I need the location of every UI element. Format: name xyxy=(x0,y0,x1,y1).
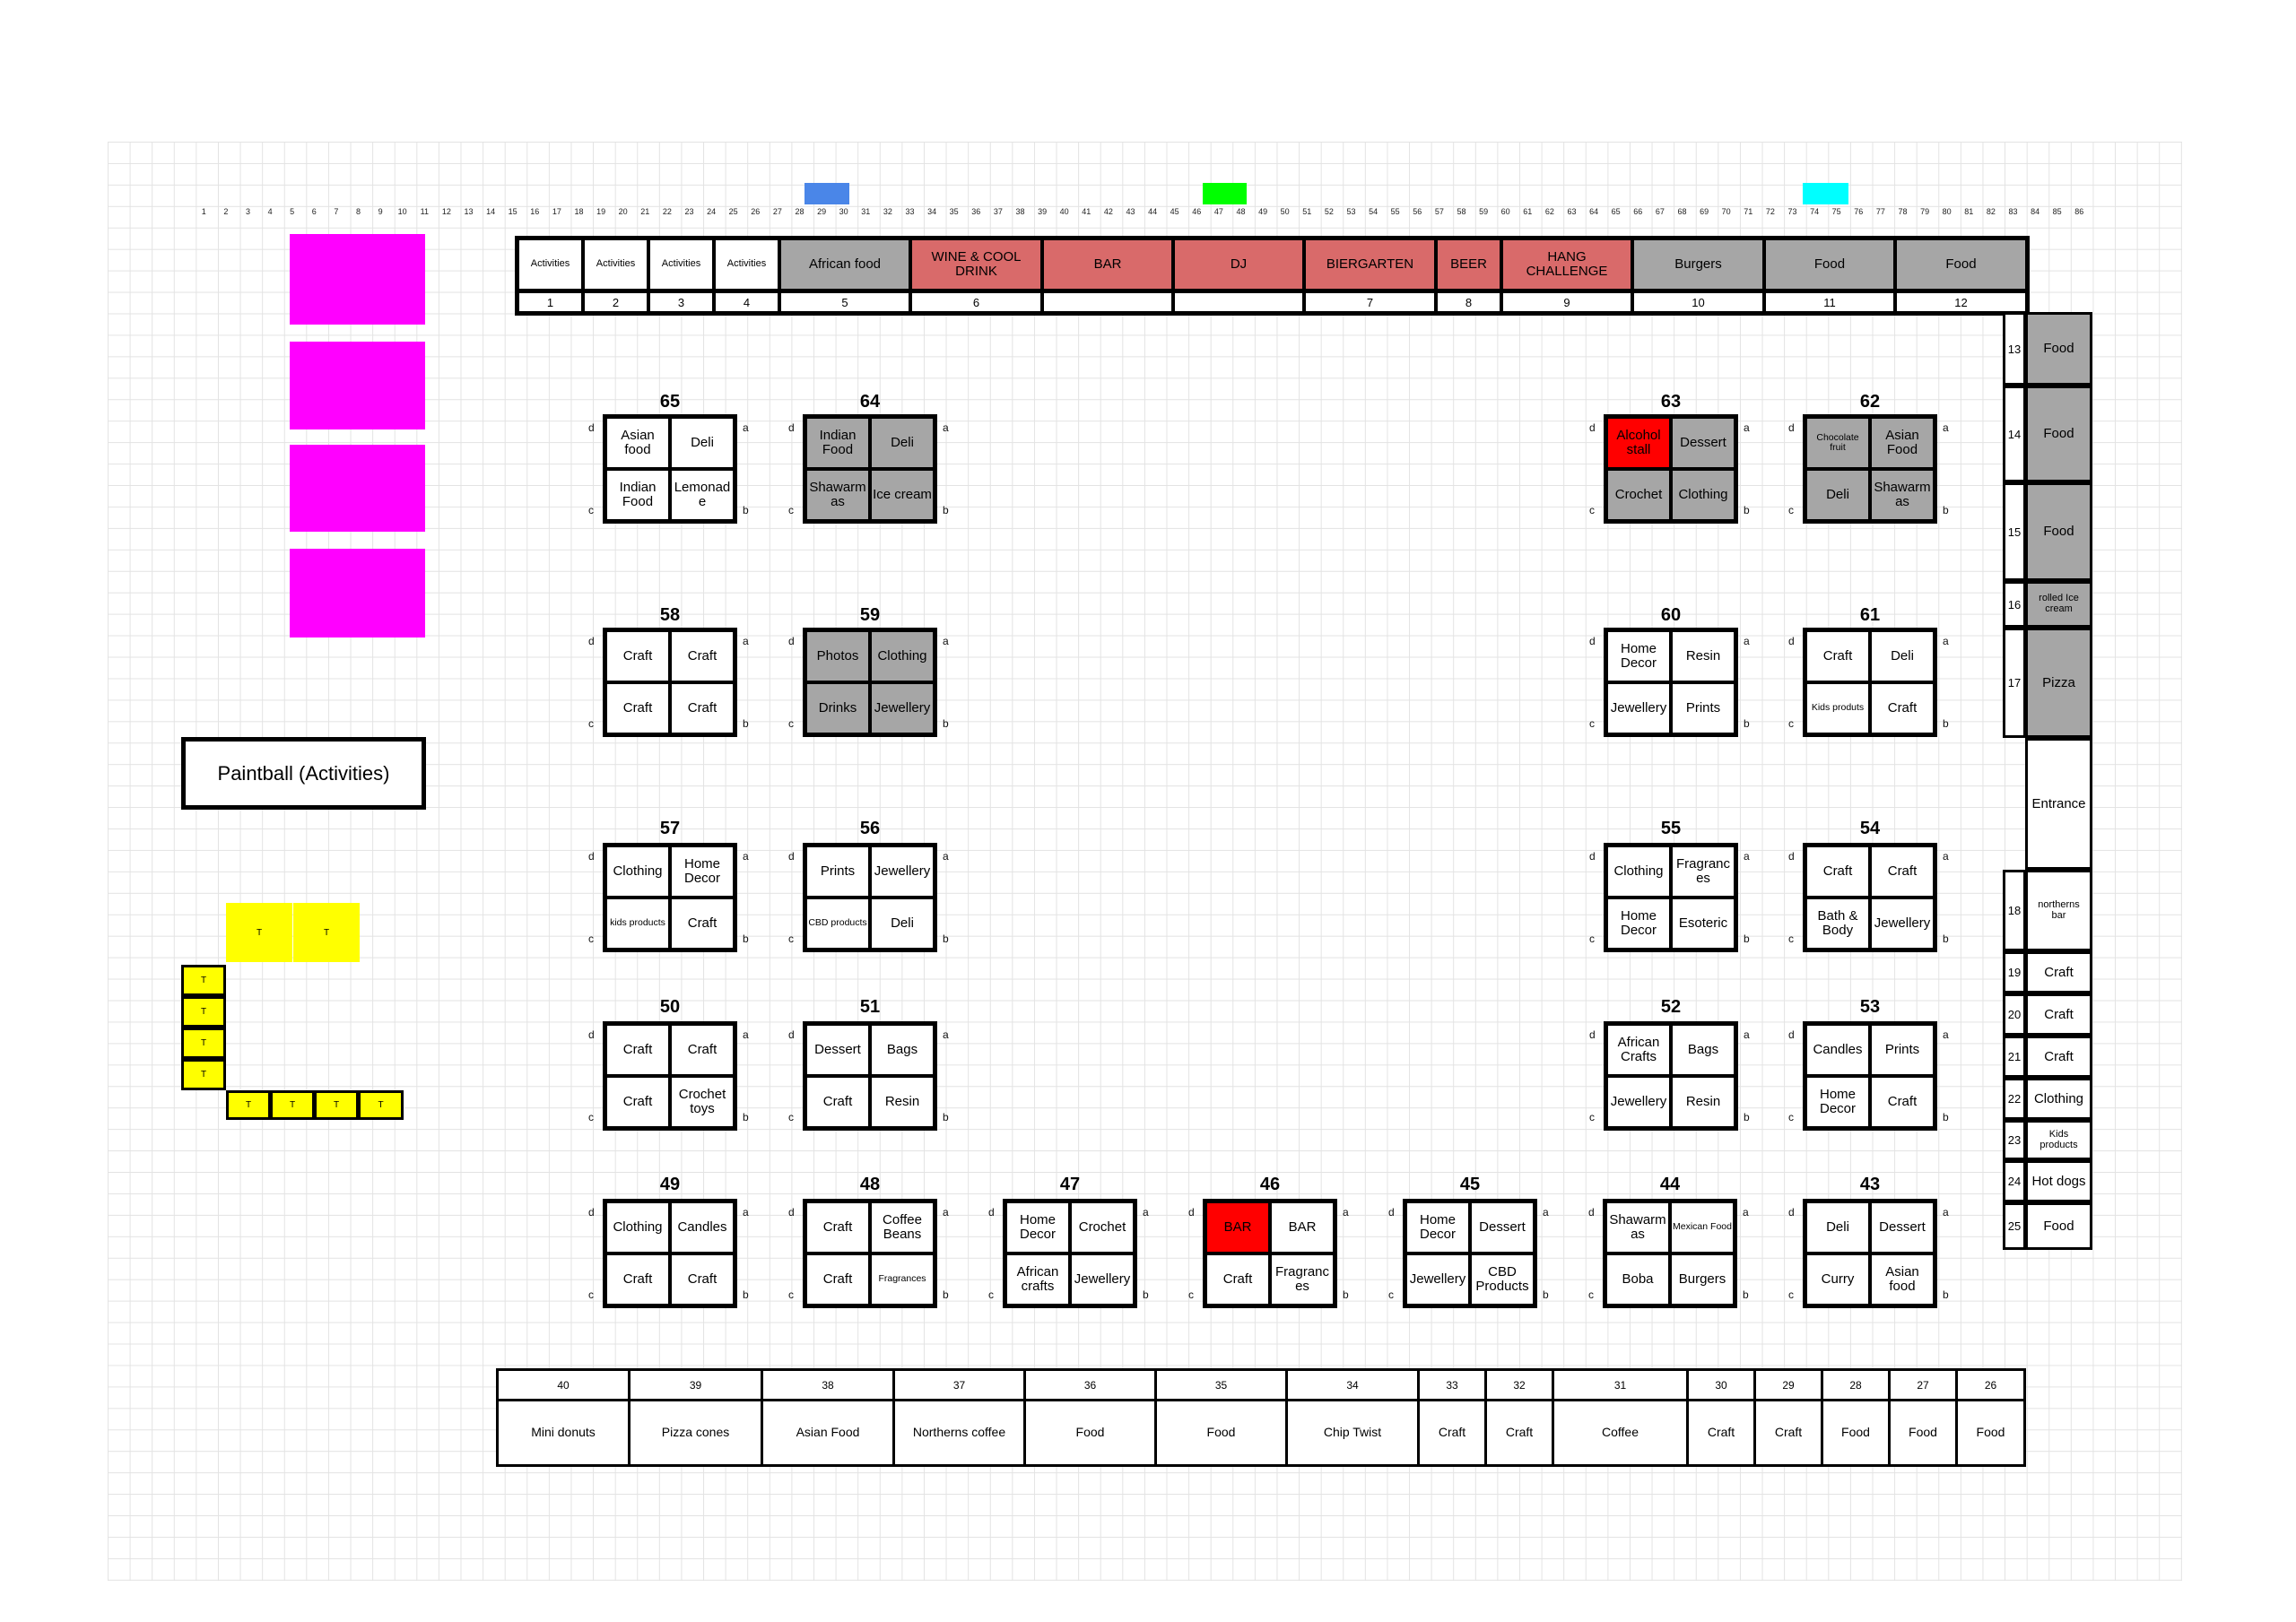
right-stall-number: 18 xyxy=(2003,870,2026,951)
corner-letter: a xyxy=(1943,421,1949,434)
column-number: 12 xyxy=(436,204,458,219)
corner-letter: b xyxy=(1943,1288,1949,1301)
corner-letter: d xyxy=(1589,850,1596,863)
banner-zone-number: 11 xyxy=(1764,291,1895,313)
stall-cell-55-a[interactable]: Fragrances xyxy=(1671,846,1735,898)
right-stall-label[interactable]: Food xyxy=(2025,1202,2092,1250)
table-cell[interactable]: T xyxy=(226,1090,271,1120)
stall-cell-62-a[interactable]: Asian Food xyxy=(1870,417,1935,469)
right-stall-label[interactable]: Food xyxy=(2025,312,2092,386)
stall-cell-61-b[interactable]: Craft xyxy=(1870,682,1935,734)
stall-cell-65-c[interactable]: Indian Food xyxy=(605,469,670,521)
banner-zone-activities: Activities4 xyxy=(714,239,779,313)
banner-zone-number: 9 xyxy=(1501,291,1632,313)
stall-cell-60-b[interactable]: Prints xyxy=(1671,682,1735,734)
stall-cell-53-b[interactable]: Craft xyxy=(1870,1076,1935,1128)
table-cell[interactable]: T xyxy=(358,1090,404,1120)
corner-letter: c xyxy=(1589,717,1595,730)
bottom-stall-label[interactable]: Craft xyxy=(1484,1399,1554,1467)
corner-letter: c xyxy=(588,1288,594,1301)
bottom-stall-number: 29 xyxy=(1753,1368,1823,1401)
stall-block-number: 58 xyxy=(585,605,755,626)
stall-box-44: ShawarmasMexican FoodBobaBurgers xyxy=(1603,1199,1737,1308)
stall-cell-43-d[interactable]: Deli xyxy=(1805,1201,1870,1253)
column-number: 40 xyxy=(1053,204,1075,219)
bottom-stall-label[interactable]: Northerns coffee xyxy=(892,1399,1026,1467)
banner-zone-activities: Activities1 xyxy=(517,239,583,313)
right-stall-number: 25 xyxy=(2003,1202,2026,1250)
stall-box-61: CraftDeliKids produtsCraft xyxy=(1803,628,1937,737)
stall-cell-45-a[interactable]: Dessert xyxy=(1470,1201,1535,1253)
column-number: 27 xyxy=(767,204,789,219)
column-number: 1 xyxy=(193,204,215,219)
stall-block-62: 62Chocolate fruitAsian FoodDeliShawarmas… xyxy=(1785,392,1955,529)
banner-zone-wine-cool-drink: WINE & COOL DRINK6 xyxy=(910,239,1042,313)
stall-cell-63-c[interactable]: Crochet xyxy=(1606,469,1671,521)
table-cell[interactable]: T xyxy=(226,903,292,962)
stall-block-52: 52African CraftsBagsJewelleryResindacb xyxy=(1586,997,1756,1136)
right-stall-label[interactable]: Food xyxy=(2025,386,2092,482)
stall-cell-47-c[interactable]: African crafts xyxy=(1005,1253,1070,1305)
stall-cell-56-c[interactable]: CBD products xyxy=(805,898,870,950)
stall-cell-54-a[interactable]: Craft xyxy=(1870,846,1935,898)
right-stall-label[interactable]: Craft xyxy=(2025,1036,2092,1078)
stall-cell-50-b[interactable]: Crochet toys xyxy=(670,1076,735,1128)
stall-cell-48-b[interactable]: Fragrances xyxy=(870,1253,935,1305)
stall-cell-54-c[interactable]: Bath & Body xyxy=(1805,898,1870,950)
banner-zone-number: 10 xyxy=(1632,291,1764,313)
column-number: 35 xyxy=(943,204,965,219)
banner-zone-label[interactable]: Activities xyxy=(583,239,648,291)
column-number: 24 xyxy=(700,204,723,219)
stall-cell-60-d[interactable]: Home Decor xyxy=(1606,630,1671,682)
stall-block-number: 65 xyxy=(585,392,755,412)
stall-cell-65-b[interactable]: Lemonade xyxy=(670,469,735,521)
bottom-stall-number: 38 xyxy=(761,1368,895,1401)
corner-letter: d xyxy=(1188,1206,1195,1219)
stall-cell-58-d[interactable]: Craft xyxy=(605,630,670,682)
stall-cell-57-a[interactable]: Home Decor xyxy=(670,846,735,898)
column-number: 82 xyxy=(1980,204,2003,219)
stall-cell-62-c[interactable]: Deli xyxy=(1805,469,1870,521)
banner-zone-label[interactable]: Burgers xyxy=(1632,239,1764,291)
stall-cell-53-a[interactable]: Prints xyxy=(1870,1024,1935,1076)
table-cell[interactable]: T xyxy=(270,1090,315,1120)
stall-block-number: 43 xyxy=(1785,1175,1955,1195)
banner-zone-label[interactable]: DJ xyxy=(1173,239,1304,291)
corner-letter: b xyxy=(743,1288,749,1301)
right-stall-number: 17 xyxy=(2003,628,2026,738)
right-stall-label[interactable]: Craft xyxy=(2025,993,2092,1036)
column-number: 53 xyxy=(1340,204,1362,219)
stall-cell-50-a[interactable]: Craft xyxy=(670,1024,735,1076)
stall-cell-50-c[interactable]: Craft xyxy=(605,1076,670,1128)
column-number: 75 xyxy=(1825,204,1848,219)
stall-cell-58-c[interactable]: Craft xyxy=(605,682,670,734)
corner-letter: a xyxy=(943,635,949,647)
stall-block-number: 60 xyxy=(1586,605,1756,626)
bottom-stall-label[interactable]: Mini donuts xyxy=(496,1399,631,1467)
corner-letter: a xyxy=(943,1028,949,1041)
right-stall-number: 22 xyxy=(2003,1078,2026,1120)
column-number: 13 xyxy=(457,204,480,219)
column-number: 78 xyxy=(1892,204,1914,219)
right-stall-label[interactable]: Pizza xyxy=(2025,628,2092,738)
banner-zone-dj: DJ xyxy=(1173,239,1304,313)
column-number: 37 xyxy=(987,204,1010,219)
stall-cell-46-d[interactable]: BAR xyxy=(1205,1201,1270,1253)
stall-cell-44-b[interactable]: Burgers xyxy=(1670,1253,1735,1305)
bottom-stall-label[interactable]: Pizza cones xyxy=(628,1399,763,1467)
corner-letter: d xyxy=(588,421,595,434)
stall-cell-46-b[interactable]: Fragrances xyxy=(1270,1253,1335,1305)
table-cell[interactable]: T xyxy=(293,903,360,962)
top-banner: Activities1Activities2Activities3Activit… xyxy=(515,236,2030,316)
corner-letter: a xyxy=(943,421,949,434)
bottom-stall-label[interactable]: Food xyxy=(1888,1399,1958,1467)
right-stall-label[interactable]: Hot dogs xyxy=(2025,1160,2092,1202)
bottom-stall-number: 26 xyxy=(1955,1368,2026,1401)
corner-letter: a xyxy=(1343,1206,1349,1219)
corner-letter: a xyxy=(1943,850,1949,863)
stall-box-43: DeliDessertCurryAsian food xyxy=(1803,1199,1937,1308)
stall-block-47: 47Home DecorCrochetAfrican craftsJewelle… xyxy=(985,1175,1155,1314)
corner-letter: d xyxy=(1788,421,1795,434)
stall-cell-43-a[interactable]: Dessert xyxy=(1870,1201,1935,1253)
corner-letter: b xyxy=(1943,1111,1949,1123)
stall-cell-65-a[interactable]: Deli xyxy=(670,417,735,469)
column-number: 48 xyxy=(1230,204,1252,219)
column-number: 80 xyxy=(1935,204,1958,219)
stall-cell-46-c[interactable]: Craft xyxy=(1205,1253,1270,1305)
corner-letter: d xyxy=(788,421,795,434)
stall-cell-61-a[interactable]: Deli xyxy=(1870,630,1935,682)
table-cell[interactable]: T xyxy=(181,996,226,1028)
corner-letter: d xyxy=(788,850,795,863)
column-number: 62 xyxy=(1539,204,1561,219)
bottom-stall-number: 30 xyxy=(1686,1368,1756,1401)
stall-cell-62-d[interactable]: Chocolate fruit xyxy=(1805,417,1870,469)
corner-letter: a xyxy=(943,850,949,863)
stall-cell-49-d[interactable]: Clothing xyxy=(605,1201,670,1253)
corner-letter: d xyxy=(1788,1206,1795,1219)
stall-block-54: 54CraftCraftBath & BodyJewellerydacb xyxy=(1785,819,1955,958)
right-stall-label[interactable]: Clothing xyxy=(2025,1078,2092,1120)
right-stall-label[interactable]: Food xyxy=(2025,482,2092,581)
stall-cell-65-d[interactable]: Asian food xyxy=(605,417,670,469)
corner-letter: d xyxy=(1788,850,1795,863)
corner-letter: b xyxy=(1943,717,1949,730)
stall-block-number: 64 xyxy=(785,392,955,412)
stall-cell-49-a[interactable]: Candles xyxy=(670,1201,735,1253)
column-number: 70 xyxy=(1715,204,1737,219)
stall-cell-55-b[interactable]: Esoteric xyxy=(1671,898,1735,950)
stall-block-46: 46BARBARCraftFragrancesdacb xyxy=(1185,1175,1355,1314)
corner-letter: b xyxy=(943,504,949,516)
stall-cell-43-c[interactable]: Curry xyxy=(1805,1253,1870,1305)
stall-block-number: 61 xyxy=(1785,605,1955,626)
banner-zone-number: 1 xyxy=(517,291,583,313)
column-number: 64 xyxy=(1583,204,1605,219)
stall-cell-56-a[interactable]: Jewellery xyxy=(870,846,935,898)
column-number: 21 xyxy=(634,204,657,219)
stall-block-number: 54 xyxy=(1785,819,1955,839)
stall-cell-60-a[interactable]: Resin xyxy=(1671,630,1735,682)
bottom-stall-label[interactable]: Food xyxy=(1955,1399,2026,1467)
stall-cell-59-b[interactable]: Jewellery xyxy=(870,682,935,734)
stall-box-46: BARBARCraftFragrances xyxy=(1203,1199,1337,1308)
stall-cell-59-d[interactable]: Photos xyxy=(805,630,870,682)
stall-cell-45-b[interactable]: CBD Products xyxy=(1470,1253,1535,1305)
stall-cell-59-a[interactable]: Clothing xyxy=(870,630,935,682)
stall-cell-50-d[interactable]: Craft xyxy=(605,1024,670,1076)
right-stall-label[interactable]: rolled Ice cream xyxy=(2025,581,2092,628)
banner-zone-label[interactable]: Activities xyxy=(517,239,583,291)
corner-letter: a xyxy=(743,421,749,434)
right-stall-label[interactable]: Kids products xyxy=(2025,1120,2092,1160)
corner-letter: c xyxy=(1589,504,1595,516)
bottom-stall-label[interactable]: Craft xyxy=(1753,1399,1823,1467)
table-cell[interactable]: T xyxy=(181,965,226,996)
stall-block-55: 55ClothingFragrancesHome DecorEsotericda… xyxy=(1586,819,1756,958)
stall-cell-64-d[interactable]: Indian Food xyxy=(805,417,870,469)
stall-block-60: 60Home DecorResinJewelleryPrintsdacb xyxy=(1586,605,1756,742)
column-number: 81 xyxy=(1958,204,1980,219)
banner-zone-bar: BAR xyxy=(1042,239,1173,313)
stall-cell-47-d[interactable]: Home Decor xyxy=(1005,1201,1070,1253)
stall-box-62: Chocolate fruitAsian FoodDeliShawarmas xyxy=(1803,414,1937,524)
banner-zone-label[interactable]: HANG CHALLENGE xyxy=(1501,239,1632,291)
column-number: 79 xyxy=(1914,204,1936,219)
stall-cell-45-c[interactable]: Jewellery xyxy=(1405,1253,1470,1305)
column-number: 26 xyxy=(744,204,767,219)
banner-zone-number xyxy=(1042,291,1173,313)
column-number: 29 xyxy=(811,204,833,219)
stall-cell-52-d[interactable]: African Crafts xyxy=(1606,1024,1671,1076)
stall-cell-53-d[interactable]: Candles xyxy=(1805,1024,1870,1076)
column-number: 41 xyxy=(1075,204,1098,219)
stall-cell-64-a[interactable]: Deli xyxy=(870,417,935,469)
stall-cell-48-c[interactable]: Craft xyxy=(805,1253,870,1305)
column-number: 11 xyxy=(413,204,436,219)
stall-cell-56-d[interactable]: Prints xyxy=(805,846,870,898)
stall-cell-52-b[interactable]: Resin xyxy=(1671,1076,1735,1128)
stall-cell-44-c[interactable]: Boba xyxy=(1605,1253,1670,1305)
stall-cell-63-b[interactable]: Clothing xyxy=(1671,469,1735,521)
column-number: 71 xyxy=(1737,204,1760,219)
corner-letter: c xyxy=(1588,1288,1594,1301)
banner-zone-number: 7 xyxy=(1304,291,1436,313)
stall-cell-47-b[interactable]: Jewellery xyxy=(1070,1253,1135,1305)
bottom-stall-label[interactable]: Craft xyxy=(1417,1399,1487,1467)
stall-block-64: 64Indian FoodDeliShawarmasIce creamdacb xyxy=(785,392,955,529)
stall-block-number: 52 xyxy=(1586,997,1756,1018)
column-number: 65 xyxy=(1605,204,1627,219)
right-stall-label[interactable]: northerns bar xyxy=(2025,870,2092,951)
right-stall-label[interactable]: Craft xyxy=(2025,951,2092,993)
stall-cell-51-d[interactable]: Dessert xyxy=(805,1024,870,1076)
banner-zone-label[interactable]: BIERGARTEN xyxy=(1304,239,1436,291)
stall-cell-53-c[interactable]: Home Decor xyxy=(1805,1076,1870,1128)
column-number: 50 xyxy=(1274,204,1296,219)
bottom-stall-label[interactable]: Asian Food xyxy=(761,1399,895,1467)
column-number: 31 xyxy=(855,204,877,219)
bottom-stall-number: 28 xyxy=(1821,1368,1891,1401)
bottom-stall-number: 35 xyxy=(1154,1368,1288,1401)
corner-letter: a xyxy=(1744,850,1750,863)
column-number: 16 xyxy=(524,204,546,219)
corner-letter: c xyxy=(788,504,794,516)
bottom-stall-label[interactable]: Chip Twist xyxy=(1285,1399,1420,1467)
column-number: 46 xyxy=(1186,204,1208,219)
column-number: 66 xyxy=(1627,204,1649,219)
stall-cell-52-c[interactable]: Jewellery xyxy=(1606,1076,1671,1128)
table-cell[interactable]: T xyxy=(181,1059,226,1090)
corner-letter: c xyxy=(1788,932,1794,945)
stall-cell-54-b[interactable]: Jewellery xyxy=(1870,898,1935,950)
stall-box-60: Home DecorResinJewelleryPrints xyxy=(1604,628,1738,737)
stall-box-50: CraftCraftCraftCrochet toys xyxy=(603,1021,737,1131)
banner-zone-activities: Activities3 xyxy=(648,239,714,313)
corner-letter: c xyxy=(588,1111,594,1123)
right-stall-number: 23 xyxy=(2003,1120,2026,1160)
bottom-stall-number: 31 xyxy=(1552,1368,1689,1401)
paintball-label: Paintball (Activities) xyxy=(218,762,390,785)
stall-block-56: 56PrintsJewelleryCBD productsDelidacb xyxy=(785,819,955,958)
stall-cell-54-d[interactable]: Craft xyxy=(1805,846,1870,898)
bottom-stall-label[interactable]: Craft xyxy=(1686,1399,1756,1467)
stall-cell-58-a[interactable]: Craft xyxy=(670,630,735,682)
stall-cell-57-b[interactable]: Craft xyxy=(670,898,735,950)
banner-zone-label[interactable]: African food xyxy=(779,239,910,291)
banner-zone-label[interactable]: Food xyxy=(1764,239,1895,291)
stall-cell-58-b[interactable]: Craft xyxy=(670,682,735,734)
column-number: 52 xyxy=(1318,204,1341,219)
stall-cell-48-d[interactable]: Craft xyxy=(805,1201,870,1253)
column-number: 10 xyxy=(391,204,413,219)
stall-cell-57-c[interactable]: kids products xyxy=(605,898,670,950)
column-number: 51 xyxy=(1296,204,1318,219)
stall-block-63: 63Alcohol stallDessertCrochetClothingdac… xyxy=(1586,392,1756,529)
right-stall-label[interactable]: Entrance xyxy=(2025,738,2092,870)
bottom-stall-label[interactable]: Food xyxy=(1154,1399,1288,1467)
table-cell[interactable]: T xyxy=(314,1090,359,1120)
table-cell[interactable]: T xyxy=(181,1028,226,1059)
stall-cell-64-b[interactable]: Ice cream xyxy=(870,469,935,521)
column-number: 57 xyxy=(1429,204,1451,219)
column-number: 56 xyxy=(1406,204,1429,219)
banner-zone-label[interactable]: Food xyxy=(1895,239,2027,291)
banner-zone-number xyxy=(1173,291,1304,313)
column-number: 34 xyxy=(921,204,944,219)
stall-cell-61-d[interactable]: Craft xyxy=(1805,630,1870,682)
stall-block-number: 45 xyxy=(1385,1175,1555,1195)
stall-cell-55-d[interactable]: Clothing xyxy=(1606,846,1671,898)
stall-cell-49-c[interactable]: Craft xyxy=(605,1253,670,1305)
green-marker xyxy=(1203,183,1247,204)
stall-block-49: 49ClothingCandlesCraftCraftdacb xyxy=(585,1175,755,1314)
stall-cell-51-c[interactable]: Craft xyxy=(805,1076,870,1128)
stall-cell-63-a[interactable]: Dessert xyxy=(1671,417,1735,469)
bottom-stall-label[interactable]: Food xyxy=(1023,1399,1157,1467)
column-number: 25 xyxy=(722,204,744,219)
stall-cell-56-b[interactable]: Deli xyxy=(870,898,935,950)
stall-block-58: 58CraftCraftCraftCraftdacb xyxy=(585,605,755,742)
bottom-stall-label[interactable]: Coffee xyxy=(1552,1399,1689,1467)
right-stall-number: 24 xyxy=(2003,1160,2026,1202)
corner-letter: d xyxy=(588,635,595,647)
corner-letter: b xyxy=(943,1111,949,1123)
paintball-box[interactable]: Paintball (Activities) xyxy=(181,737,426,810)
stall-cell-51-b[interactable]: Resin xyxy=(870,1076,935,1128)
corner-letter: c xyxy=(1788,1111,1794,1123)
stall-cell-49-b[interactable]: Craft xyxy=(670,1253,735,1305)
column-number: 61 xyxy=(1517,204,1539,219)
banner-zone-label[interactable]: Activities xyxy=(648,239,714,291)
stall-block-48: 48CraftCoffee BeansCraftFragrancesdacb xyxy=(785,1175,955,1314)
corner-letter: a xyxy=(1743,1206,1749,1219)
stall-cell-43-b[interactable]: Asian food xyxy=(1870,1253,1935,1305)
stall-cell-63-d[interactable]: Alcohol stall xyxy=(1606,417,1671,469)
corner-letter: d xyxy=(588,1028,595,1041)
column-number: 74 xyxy=(1804,204,1826,219)
stall-block-65: 65Asian foodDeliIndian FoodLemonadedacb xyxy=(585,392,755,529)
banner-zone-label[interactable]: BAR xyxy=(1042,239,1173,291)
stall-block-number: 55 xyxy=(1586,819,1756,839)
banner-zone-label[interactable]: BEER xyxy=(1436,239,1501,291)
stall-cell-55-c[interactable]: Home Decor xyxy=(1606,898,1671,950)
bottom-stall-number: 37 xyxy=(892,1368,1026,1401)
column-number: 76 xyxy=(1848,204,1870,219)
banner-zone-label[interactable]: Activities xyxy=(714,239,779,291)
stall-cell-61-c[interactable]: Kids produts xyxy=(1805,682,1870,734)
column-number: 58 xyxy=(1450,204,1473,219)
banner-zone-beer: BEER8 xyxy=(1436,239,1501,313)
column-number: 45 xyxy=(1163,204,1186,219)
stall-box-53: CandlesPrintsHome DecorCraft xyxy=(1803,1021,1937,1131)
stall-box-57: ClothingHome Decorkids productsCraft xyxy=(603,843,737,952)
blue-marker xyxy=(804,183,849,204)
stall-cell-57-d[interactable]: Clothing xyxy=(605,846,670,898)
corner-letter: a xyxy=(1744,635,1750,647)
column-number: 18 xyxy=(568,204,590,219)
stall-cell-59-c[interactable]: Drinks xyxy=(805,682,870,734)
banner-zone-label[interactable]: WINE & COOL DRINK xyxy=(910,239,1042,291)
corner-letter: c xyxy=(588,717,594,730)
stall-cell-51-a[interactable]: Bags xyxy=(870,1024,935,1076)
stall-cell-52-a[interactable]: Bags xyxy=(1671,1024,1735,1076)
stall-cell-45-d[interactable]: Home Decor xyxy=(1405,1201,1470,1253)
stall-cell-44-a[interactable]: Mexican Food xyxy=(1670,1201,1735,1253)
corner-letter: a xyxy=(1943,1028,1949,1041)
corner-letter: c xyxy=(588,932,594,945)
stall-cell-44-d[interactable]: Shawarmas xyxy=(1605,1201,1670,1253)
corner-letter: b xyxy=(1143,1288,1149,1301)
magenta-block xyxy=(290,549,425,638)
stall-cell-46-a[interactable]: BAR xyxy=(1270,1201,1335,1253)
stall-cell-64-c[interactable]: Shawarmas xyxy=(805,469,870,521)
stall-cell-47-a[interactable]: Crochet xyxy=(1070,1201,1135,1253)
stall-box-47: Home DecorCrochetAfrican craftsJewellery xyxy=(1003,1199,1137,1308)
stall-cell-62-b[interactable]: Shawarmas xyxy=(1870,469,1935,521)
stall-box-54: CraftCraftBath & BodyJewellery xyxy=(1803,843,1937,952)
column-number: 73 xyxy=(1781,204,1804,219)
stall-cell-48-a[interactable]: Coffee Beans xyxy=(870,1201,935,1253)
column-number: 59 xyxy=(1473,204,1495,219)
stall-cell-60-c[interactable]: Jewellery xyxy=(1606,682,1671,734)
stall-box-49: ClothingCandlesCraftCraft xyxy=(603,1199,737,1308)
bottom-stall-label[interactable]: Food xyxy=(1821,1399,1891,1467)
